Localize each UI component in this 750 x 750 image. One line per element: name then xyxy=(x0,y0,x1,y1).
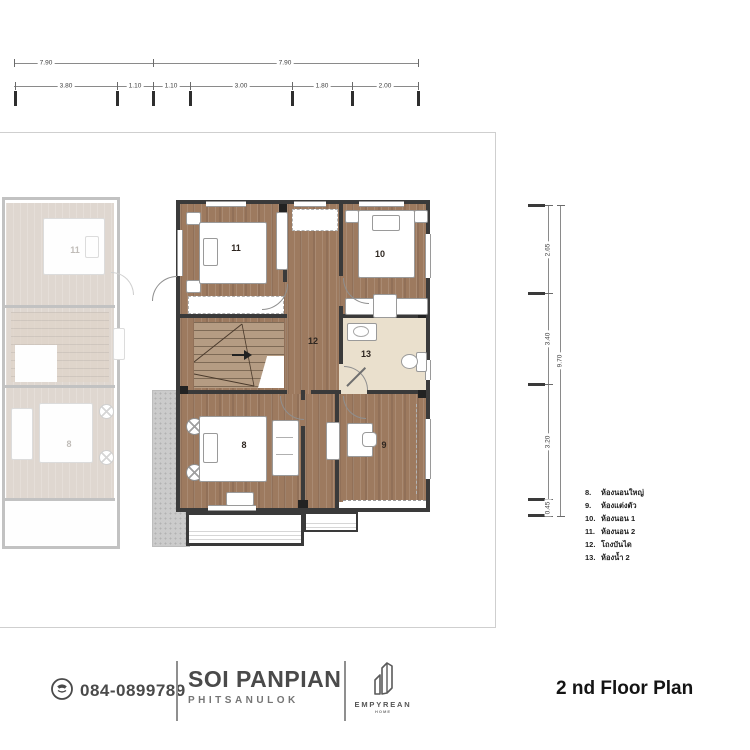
legend-label: ห้องแต่งตัว xyxy=(601,499,637,512)
legend-item: 8. ห้องนอนใหญ่ xyxy=(585,486,695,499)
cabinet xyxy=(276,212,288,270)
column-post xyxy=(180,386,188,394)
dim-tick xyxy=(557,205,565,206)
dim-label: 3.20 xyxy=(545,434,552,451)
dim-label: 2.00 xyxy=(377,83,394,90)
project-name: SOI PANPIAN xyxy=(188,666,341,693)
room-label-8: 8 xyxy=(241,440,246,450)
ghost-balcony xyxy=(6,501,114,545)
room-label-9: 9 xyxy=(381,440,386,450)
dim-tick xyxy=(418,82,419,90)
balcony-railing xyxy=(189,531,301,543)
column-post xyxy=(279,204,287,212)
dim-label: 0.45 xyxy=(545,500,552,517)
dim-dash xyxy=(528,514,545,517)
dim-label: 7.90 xyxy=(38,60,55,67)
hall-floor xyxy=(287,204,343,394)
legend-label: ห้องนอน 1 xyxy=(601,512,635,525)
dim-tick xyxy=(418,59,419,67)
staircase xyxy=(194,322,284,388)
legend-label: ห้องนอน 2 xyxy=(601,525,635,538)
window xyxy=(425,234,431,278)
balcony xyxy=(186,512,304,546)
legend-number: 13. xyxy=(585,551,598,564)
project-block: SOI PANPIAN PHITSANULOK xyxy=(188,666,341,706)
dim-label: 9.70 xyxy=(557,353,564,370)
brand-subtitle: HOME xyxy=(354,709,412,714)
legend-number: 8. xyxy=(585,486,598,499)
pillow xyxy=(203,433,218,463)
pillow xyxy=(372,215,400,231)
ghost-lamp xyxy=(99,404,114,419)
dim-tick xyxy=(545,293,553,294)
ghost-lamp xyxy=(99,450,114,465)
dim-tick xyxy=(153,59,154,67)
legend-item: 11. ห้องนอน 2 xyxy=(585,525,695,538)
legend-item: 13. ห้องน้ำ 2 xyxy=(585,551,695,564)
dim-dash xyxy=(528,498,545,501)
balcony-railing xyxy=(306,523,356,530)
brand-logo-block: EMPYREAN HOME xyxy=(354,658,412,714)
ghost-pillow xyxy=(85,236,99,258)
sink-basin xyxy=(353,326,369,337)
floor-plan: 11 10 12 13 8 9 xyxy=(176,200,430,512)
wall xyxy=(301,426,305,508)
ghost-sofa xyxy=(11,408,33,460)
dim-label: 3.00 xyxy=(233,83,250,90)
sofa-cushion-line xyxy=(276,454,293,455)
grid-marker xyxy=(351,91,354,106)
ghost-wall xyxy=(5,498,115,501)
dim-tick xyxy=(117,82,118,90)
stair-arrow-shaft xyxy=(232,354,244,356)
nightstand xyxy=(414,210,428,223)
wall xyxy=(339,306,343,364)
legend-item: 10. ห้องนอน 1 xyxy=(585,512,695,525)
window xyxy=(294,201,326,207)
chair xyxy=(362,432,377,447)
ghost-stair-landing xyxy=(15,345,57,382)
footer-divider xyxy=(176,661,178,721)
pillow xyxy=(203,238,218,266)
legend-label: โถงบันได xyxy=(601,538,632,551)
legend-item: 9. ห้องแต่งตัว xyxy=(585,499,695,512)
plan-title: 2 nd Floor Plan xyxy=(556,678,693,700)
dim-label: 3.40 xyxy=(545,331,552,348)
dim-dash xyxy=(528,383,545,386)
ghost-window-box xyxy=(113,328,125,360)
grid-marker xyxy=(417,91,420,106)
grid-marker xyxy=(116,91,119,106)
dim-tick xyxy=(190,82,191,90)
tv-cabinet xyxy=(226,492,254,506)
building-logo-icon xyxy=(366,658,400,700)
ghost-wall xyxy=(5,305,115,308)
dim-label: 1.10 xyxy=(127,83,144,90)
wall xyxy=(180,390,287,394)
legend-number: 9. xyxy=(585,499,598,512)
column-post xyxy=(418,390,426,398)
grid-marker xyxy=(189,91,192,106)
balcony-step xyxy=(304,512,358,532)
legend-number: 10. xyxy=(585,512,598,525)
dim-line-segments xyxy=(14,86,418,87)
dim-tick xyxy=(557,516,565,517)
toilet-bowl xyxy=(401,354,418,369)
brand-name: EMPYREAN xyxy=(354,700,412,709)
wall xyxy=(339,204,343,276)
wall xyxy=(180,314,287,318)
legend-item: 12. โถงบันได xyxy=(585,538,695,551)
ghost-wall xyxy=(5,385,115,388)
dim-tick xyxy=(153,82,154,90)
grid-marker xyxy=(291,91,294,106)
legend-number: 11. xyxy=(585,525,598,538)
dim-dash xyxy=(528,292,545,295)
project-location: PHITSANULOK xyxy=(188,695,341,706)
sofa xyxy=(272,420,299,476)
window xyxy=(359,201,404,207)
legend-label: ห้องน้ำ 2 xyxy=(601,551,630,564)
legend-label: ห้องนอนใหญ่ xyxy=(601,486,644,499)
room-legend: 8. ห้องนอนใหญ่ 9. ห้องแต่งตัว 10. ห้องนอ… xyxy=(585,486,695,564)
room-label-12: 12 xyxy=(308,336,318,346)
legend-number: 12. xyxy=(585,538,598,551)
footer-divider xyxy=(344,661,346,721)
grid-marker xyxy=(14,91,17,106)
room-label-10: 10 xyxy=(375,249,385,259)
wardrobe xyxy=(292,209,338,231)
room-label-11: 11 xyxy=(231,243,241,253)
closet-dashed xyxy=(416,404,426,494)
dim-tick xyxy=(292,82,293,90)
window-bay xyxy=(343,500,426,508)
dim-label: 1.10 xyxy=(163,83,180,90)
grid-marker xyxy=(152,91,155,106)
ghost-floor-plan: 11 8 xyxy=(2,197,120,549)
dim-tick xyxy=(545,384,553,385)
dim-line-overall xyxy=(14,63,418,64)
dim-label: 1.80 xyxy=(314,83,331,90)
dim-label: 2.65 xyxy=(545,242,552,259)
dim-dash xyxy=(528,204,545,207)
ghost-room-label: 8 xyxy=(66,439,71,449)
ghost-bed xyxy=(39,403,93,463)
room-label-13: 13 xyxy=(361,349,371,359)
dim-label: 3.80 xyxy=(58,83,75,90)
shelf xyxy=(326,422,340,460)
dim-label: 7.90 xyxy=(277,60,294,67)
phone-number: 084-0899789 xyxy=(80,681,186,701)
nightstand xyxy=(345,210,359,223)
drawer-unit xyxy=(373,294,397,318)
window xyxy=(177,230,183,276)
dim-tick xyxy=(352,82,353,90)
column-post xyxy=(298,500,308,508)
stair-arrow-icon xyxy=(244,350,252,360)
ghost-room-label: 11 xyxy=(70,245,80,255)
dim-tick xyxy=(15,82,16,90)
dim-tick xyxy=(545,205,553,206)
window xyxy=(206,201,246,207)
sofa-cushion-line xyxy=(276,437,293,438)
dim-tick xyxy=(14,59,15,67)
phone-icon xyxy=(50,677,74,701)
